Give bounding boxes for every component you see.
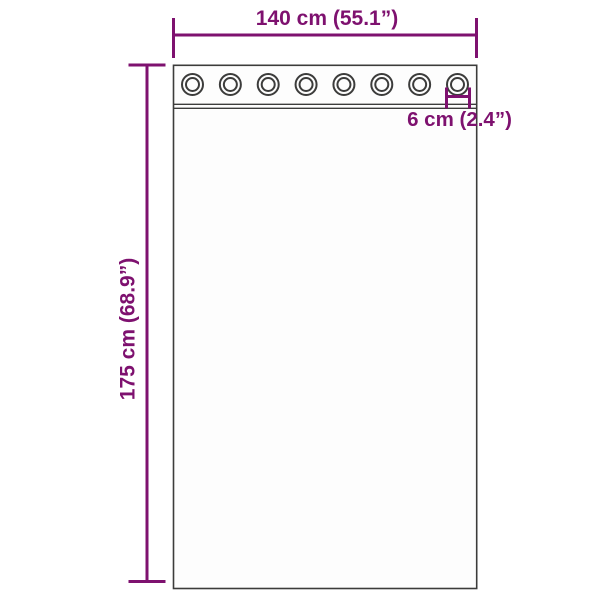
svg-text:6 cm (2.4”): 6 cm (2.4”) (407, 108, 512, 131)
svg-text:140 cm (55.1”): 140 cm (55.1”) (256, 7, 398, 30)
svg-text:175 cm (68.9”): 175 cm (68.9”) (117, 258, 140, 400)
